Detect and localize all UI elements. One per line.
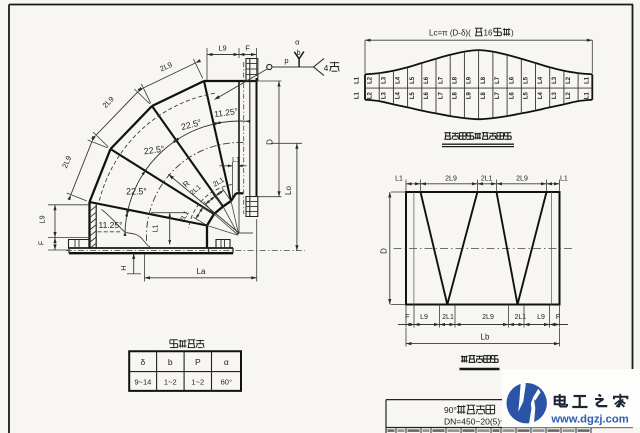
svg-text:L9: L9	[420, 314, 428, 321]
svg-text:2L9: 2L9	[516, 176, 528, 183]
svg-text:L4: L4	[396, 76, 402, 84]
svg-text:L3: L3	[552, 76, 558, 84]
svg-text:2L9: 2L9	[445, 176, 457, 183]
svg-text:2L1: 2L1	[442, 314, 454, 321]
svg-text:Lc=π (D-δ)(: Lc=π (D-δ)(	[429, 29, 471, 38]
svg-text:δ: δ	[141, 357, 146, 367]
svg-text:b: b	[168, 357, 173, 367]
svg-text:L7: L7	[438, 76, 444, 84]
svg-text:L6: L6	[509, 76, 515, 84]
svg-text:9~14: 9~14	[134, 377, 151, 386]
svg-text:L3: L3	[552, 91, 558, 99]
svg-text:L5: L5	[410, 76, 416, 84]
svg-text:L1: L1	[232, 157, 240, 164]
svg-text:L9: L9	[467, 76, 473, 84]
svg-text:α: α	[224, 357, 229, 367]
svg-text:Lb: Lb	[481, 333, 490, 342]
svg-text:L3: L3	[382, 91, 388, 99]
svg-text:L2: L2	[566, 91, 572, 99]
svg-text:2L1: 2L1	[481, 176, 493, 183]
svg-text:L1: L1	[355, 91, 361, 99]
svg-text:L2: L2	[566, 76, 572, 84]
svg-text:La: La	[197, 267, 206, 276]
svg-text:F: F	[39, 241, 46, 245]
svg-text:L9: L9	[467, 91, 473, 99]
svg-text:L8: L8	[481, 91, 487, 99]
svg-text:90°: 90°	[444, 405, 457, 415]
svg-text:L9: L9	[537, 314, 545, 321]
svg-text:www.dgzj.com: www.dgzj.com	[550, 413, 628, 425]
svg-text:L7: L7	[438, 91, 444, 99]
svg-text:L8: L8	[453, 76, 459, 84]
svg-text:1~2: 1~2	[191, 377, 204, 386]
svg-text:2L1: 2L1	[514, 314, 526, 321]
svg-text:L1: L1	[355, 76, 361, 84]
svg-text:α: α	[295, 37, 300, 46]
svg-text:L1: L1	[395, 176, 403, 183]
svg-text:L2: L2	[367, 91, 373, 99]
svg-text:F: F	[245, 44, 250, 53]
svg-text:L3: L3	[382, 76, 388, 84]
svg-text:22.5°: 22.5°	[126, 187, 147, 197]
svg-text:L9: L9	[218, 44, 226, 53]
svg-text:F: F	[405, 314, 409, 321]
svg-text:L1: L1	[585, 76, 591, 84]
svg-text:DN=450~20(5): DN=450~20(5)	[444, 417, 500, 427]
svg-text:b: b	[297, 50, 301, 57]
svg-text:L6: L6	[424, 76, 430, 84]
svg-text:H: H	[119, 265, 128, 270]
svg-text:L4: L4	[396, 91, 402, 99]
svg-text:L4: L4	[538, 76, 544, 84]
svg-text:L9: L9	[38, 215, 47, 223]
svg-text:): )	[511, 29, 514, 38]
svg-text:Lo: Lo	[284, 186, 293, 195]
svg-text:p: p	[284, 56, 288, 65]
svg-text:L8: L8	[453, 91, 459, 99]
svg-text:L7: L7	[495, 91, 501, 99]
svg-text:16: 16	[484, 29, 493, 38]
svg-text:L1: L1	[585, 91, 591, 99]
svg-text:11.25°: 11.25°	[98, 220, 122, 230]
svg-text:1~2: 1~2	[164, 377, 177, 386]
svg-text:L2: L2	[367, 76, 373, 84]
svg-text:4: 4	[324, 63, 329, 73]
svg-text:D: D	[266, 139, 275, 145]
svg-text:L1: L1	[560, 176, 568, 183]
svg-text:L5: L5	[524, 91, 530, 99]
svg-text:D: D	[380, 248, 389, 254]
svg-text:60°: 60°	[221, 377, 232, 386]
svg-text:L4: L4	[538, 91, 544, 99]
svg-text:L5: L5	[524, 76, 530, 84]
svg-text:L6: L6	[424, 91, 430, 99]
svg-text:P: P	[195, 357, 201, 367]
svg-text:L5: L5	[410, 91, 416, 99]
svg-text:L8: L8	[481, 76, 487, 84]
svg-text:L7: L7	[495, 76, 501, 84]
svg-text:F: F	[556, 314, 560, 321]
svg-text:L6: L6	[509, 91, 515, 99]
svg-text:L1: L1	[153, 225, 160, 233]
svg-text:2L9: 2L9	[482, 314, 494, 321]
